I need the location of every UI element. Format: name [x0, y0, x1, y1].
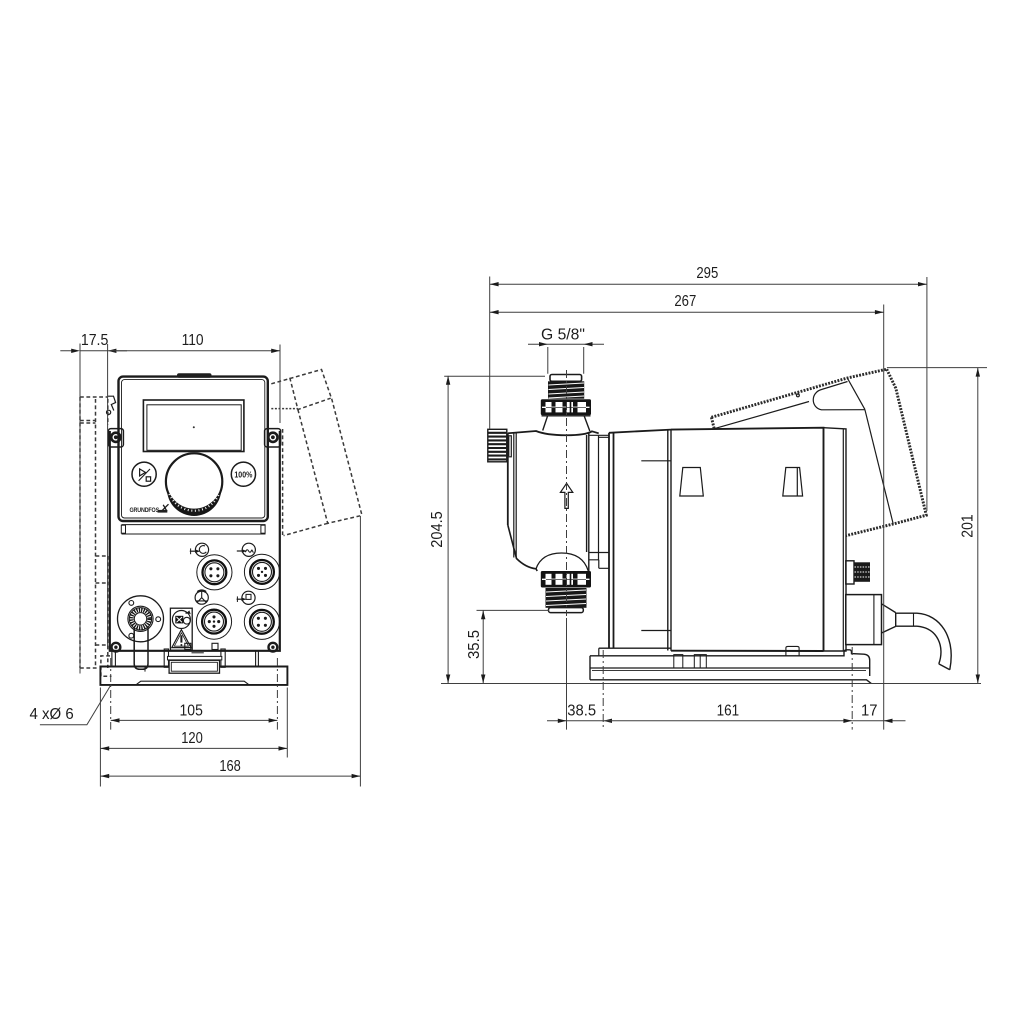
- svg-text:35.5: 35.5: [466, 630, 483, 659]
- svg-text:168: 168: [219, 758, 241, 775]
- svg-text:4 xØ 6: 4 xØ 6: [30, 706, 74, 723]
- svg-text:267: 267: [674, 293, 696, 310]
- svg-text:G 5/8": G 5/8": [541, 326, 585, 343]
- svg-text:204.5: 204.5: [429, 511, 446, 548]
- svg-text:161: 161: [717, 702, 740, 719]
- svg-text:105: 105: [180, 702, 203, 719]
- svg-text:110: 110: [182, 332, 204, 349]
- svg-text:17: 17: [861, 702, 878, 719]
- svg-text:120: 120: [181, 730, 203, 747]
- svg-text:38.5: 38.5: [567, 702, 596, 719]
- svg-text:17.5: 17.5: [81, 332, 109, 349]
- svg-text:100%: 100%: [234, 470, 252, 480]
- svg-text:295: 295: [696, 265, 718, 282]
- svg-text:GRUNDFOS: GRUNDFOS: [130, 507, 160, 514]
- svg-text:201: 201: [959, 514, 976, 537]
